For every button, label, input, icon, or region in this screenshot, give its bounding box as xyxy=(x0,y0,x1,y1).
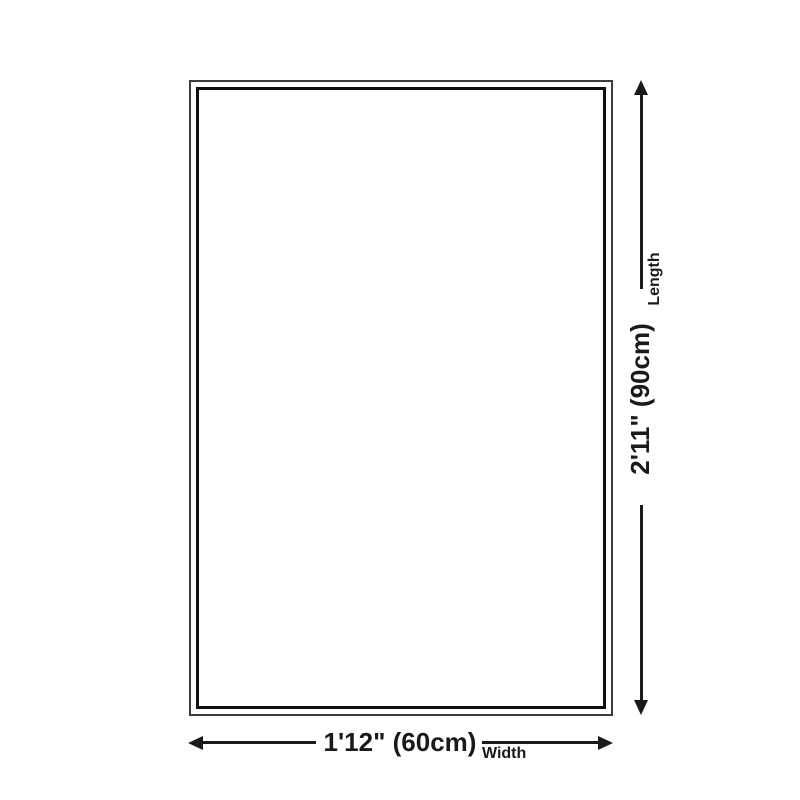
arrow-right-icon xyxy=(598,736,613,750)
length-line-top xyxy=(640,93,643,289)
width-caption: Width xyxy=(482,745,526,763)
length-line-bottom xyxy=(640,505,643,701)
rug-size-diagram: Length 2'11" (90cm) 1'12" (60cm) Width xyxy=(0,0,800,800)
rug-inner-border xyxy=(196,87,606,709)
width-value: 1'12" (60cm) xyxy=(315,727,485,757)
arrow-left-icon xyxy=(188,736,203,750)
length-value: 2'11" (90cm) xyxy=(625,314,655,484)
length-caption: Length xyxy=(647,249,663,309)
rug-outline xyxy=(189,80,613,716)
width-line-right xyxy=(482,741,599,744)
arrow-down-icon xyxy=(634,700,648,715)
width-line-left xyxy=(202,741,316,744)
